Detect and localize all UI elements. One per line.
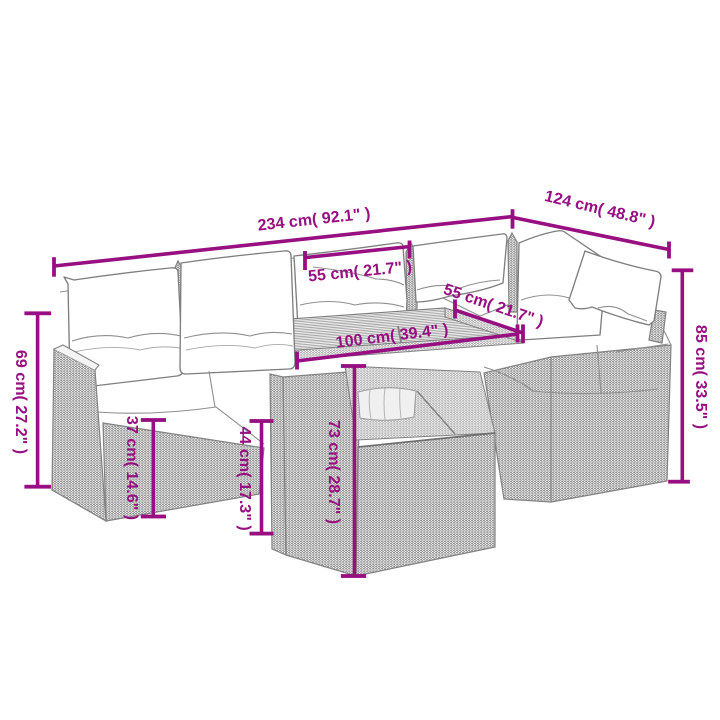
svg-text:73 cm( 28.7" ): 73 cm( 28.7" ) bbox=[325, 420, 343, 524]
svg-text:37 cm( 14.6" ): 37 cm( 14.6" ) bbox=[123, 416, 141, 520]
svg-text:69 cm( 27.2" ): 69 cm( 27.2" ) bbox=[12, 350, 30, 454]
svg-text:44 cm( 17.3" ): 44 cm( 17.3" ) bbox=[236, 426, 254, 530]
svg-text:85 cm( 33.5" ): 85 cm( 33.5" ) bbox=[692, 325, 710, 429]
